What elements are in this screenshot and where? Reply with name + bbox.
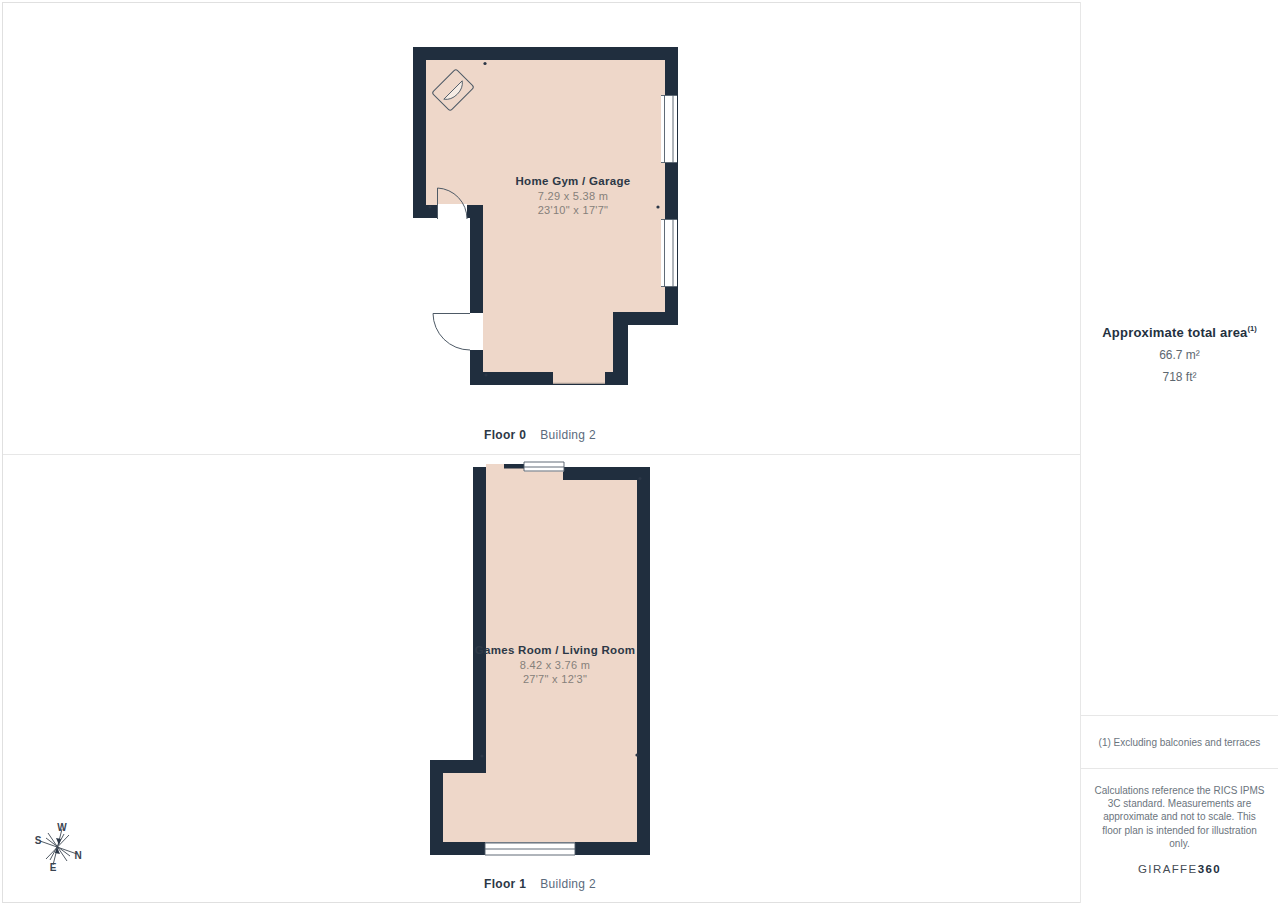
- floor1-room-label: Games Room / Living Room 8.42 x 3.76 m 2…: [475, 644, 636, 686]
- floor0-window-upper: [661, 95, 677, 163]
- floor1-caption: Floor 1Building 2: [484, 877, 596, 891]
- compass-west-label: W: [57, 822, 66, 833]
- compass-east-label: E: [50, 862, 57, 873]
- floor1-room-name: Games Room / Living Room: [475, 644, 636, 656]
- floor0-caption-building: Building 2: [540, 428, 596, 442]
- floor0-room-name: Home Gym / Garage: [515, 175, 630, 187]
- floor0-caption: Floor 0Building 2: [484, 428, 596, 442]
- footnote-text: (1) Excluding balconies and terraces: [1099, 737, 1261, 748]
- compass-south-label: S: [35, 835, 42, 846]
- floor0-caption-floor: Floor 0: [484, 428, 526, 442]
- total-area-title-text: Approximate total area: [1102, 325, 1247, 340]
- floor1-window-bottom: [485, 843, 575, 856]
- floorplan-page: { "floors": [ { "name": "Home Gym / Gara…: [0, 0, 1280, 905]
- floor1-caption-floor: Floor 1: [484, 877, 526, 891]
- info-sidebar: Approximate total area(1) 66.7 m² 718 ft…: [1080, 2, 1278, 903]
- total-area-title: Approximate total area(1): [1081, 324, 1278, 340]
- floor0-window-lower: [661, 219, 677, 287]
- brand-name-regular: GIRAFFE: [1138, 863, 1198, 875]
- floor0-size-metric: 7.29 x 5.38 m: [515, 190, 630, 204]
- total-area-m2: 66.7 m²: [1081, 348, 1278, 362]
- disclaimer-text: Calculations reference the RICS IPMS 3C …: [1093, 784, 1266, 850]
- compass-rose: [40, 829, 77, 865]
- floor0-door-lower: [433, 313, 483, 350]
- floor0-room-label: Home Gym / Garage 7.29 x 5.38 m 23'10" x…: [515, 175, 630, 217]
- floor1-caption-building: Building 2: [540, 877, 596, 891]
- total-area-block: Approximate total area(1) 66.7 m² 718 ft…: [1081, 324, 1278, 384]
- floor0-size-imperial: 23'10" x 17'7": [515, 204, 630, 218]
- floor1-size-metric: 8.42 x 3.76 m: [475, 659, 636, 673]
- brand-logo: GIRAFFE360: [1081, 863, 1278, 875]
- floor1-window-top: [486, 462, 564, 482]
- total-area-ft2: 718 ft²: [1081, 370, 1278, 384]
- total-area-footnote-marker: (1): [1248, 324, 1257, 333]
- floor1-size-imperial: 27'7" x 12'3": [475, 673, 636, 687]
- footnote-box: (1) Excluding balconies and terraces: [1081, 715, 1278, 769]
- brand-name-bold: 360: [1198, 863, 1221, 875]
- compass-north-label: N: [74, 850, 81, 861]
- floor0-bottom-opening: [553, 372, 605, 384]
